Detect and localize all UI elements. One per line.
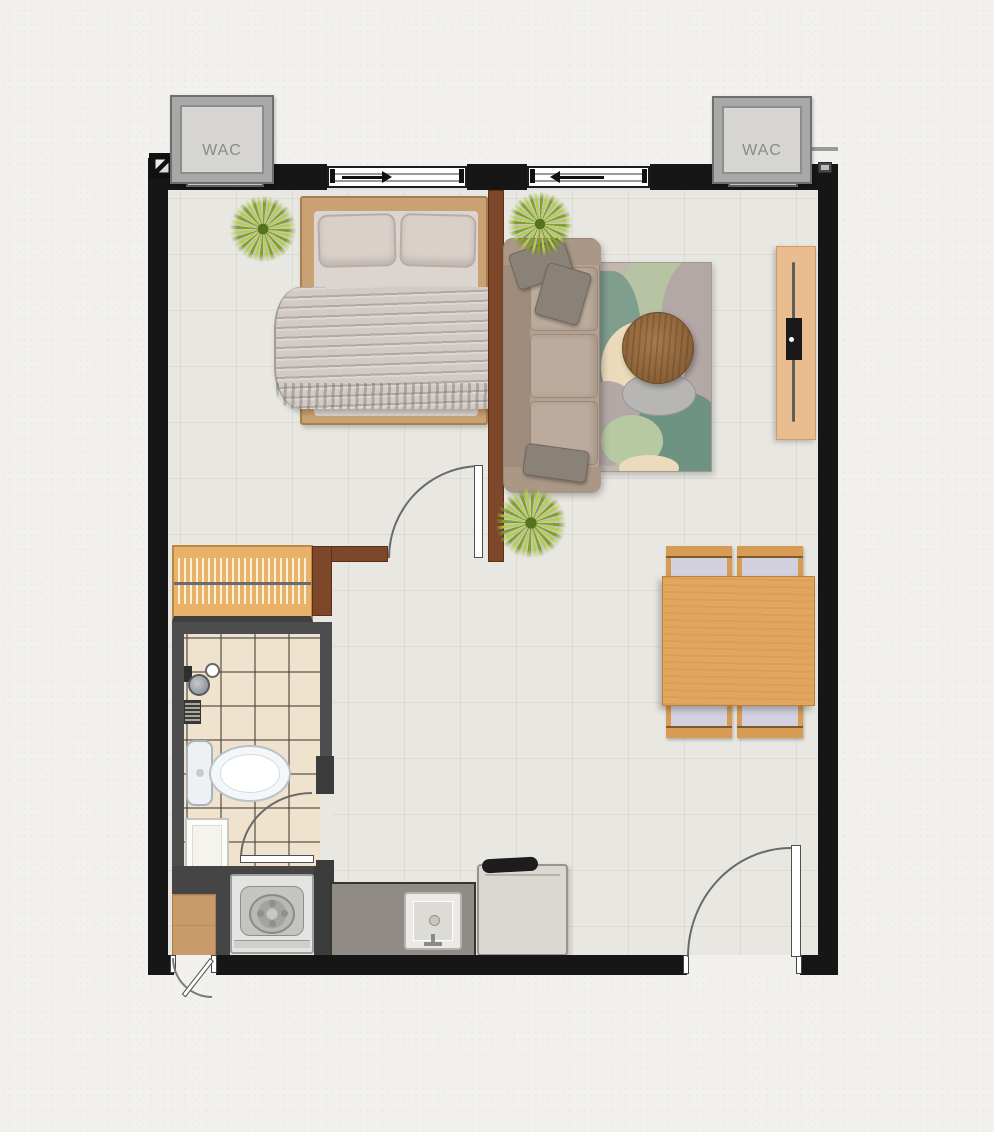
window-slide-direction-right-icon	[342, 176, 384, 179]
bedroom-wall-vertical	[312, 546, 332, 616]
bedroom-door-leaf	[474, 465, 483, 558]
entry-mat	[172, 894, 216, 957]
sofa-cushion-2	[530, 334, 598, 398]
washer-drum	[249, 894, 295, 934]
entrance-door-leaf	[791, 845, 801, 957]
floor-plan: WAC WAC	[0, 0, 994, 1132]
tv-mount	[786, 318, 802, 360]
dining-chair-top-left	[666, 546, 732, 580]
washing-machine	[230, 874, 314, 954]
bed-pillow-right	[399, 213, 476, 268]
floor-drain-grate	[184, 700, 201, 724]
laundry-divider-left	[216, 880, 230, 957]
entrance-jamb-left	[683, 955, 689, 974]
bed-pillow-left	[317, 213, 396, 268]
shower-head	[188, 674, 210, 696]
wall-bottom-middle-segment	[216, 955, 687, 975]
wac-unit-right: WAC	[712, 96, 812, 184]
bathroom-door-leaf	[240, 855, 314, 863]
bed-blanket	[274, 287, 490, 409]
bathroom-door-jamb-block-top	[316, 756, 334, 794]
sink-drain	[429, 915, 440, 926]
dining-chair-bottom-right	[737, 704, 803, 738]
wardrobe-sliding-doors	[172, 545, 313, 622]
plant-living-top	[508, 192, 572, 256]
wall-top-middle-segment	[467, 164, 527, 190]
laundry-wall-strip-left	[172, 880, 218, 894]
wall-stub-line	[812, 147, 838, 151]
dining-chair-top-right	[737, 546, 803, 580]
wac-right-label: WAC	[742, 142, 782, 160]
bathroom-door-gap	[320, 794, 332, 860]
wac-left-label: WAC	[202, 142, 242, 160]
dining-chair-bottom-left	[666, 704, 732, 738]
window-slide-direction-left-icon	[558, 176, 604, 179]
plant-living-bottom	[496, 488, 566, 558]
washer-panel	[234, 940, 310, 948]
refrigerator-handle	[482, 857, 539, 874]
sofa	[503, 238, 600, 492]
refrigerator	[477, 864, 568, 956]
entrance-threshold	[687, 955, 800, 973]
wac-unit-right-panel: WAC	[722, 106, 802, 174]
wall-bottom-right-segment	[800, 955, 838, 975]
wall-right	[818, 164, 838, 975]
plant-bedroom	[230, 196, 296, 262]
wardrobe-rail	[174, 582, 311, 585]
wac-unit-left: WAC	[170, 95, 274, 184]
toilet-bowl	[209, 745, 291, 802]
wall-stub-box	[818, 162, 832, 173]
sink-faucet-spout	[431, 934, 435, 946]
kitchen-sink	[404, 892, 462, 950]
wall-left	[148, 158, 168, 975]
entrance-jamb-right	[796, 955, 802, 974]
wac-unit-left-panel: WAC	[180, 105, 264, 174]
coffee-table	[622, 312, 694, 384]
dining-table	[662, 576, 815, 706]
blanket-fold	[276, 383, 490, 409]
shower-knob	[205, 663, 220, 678]
